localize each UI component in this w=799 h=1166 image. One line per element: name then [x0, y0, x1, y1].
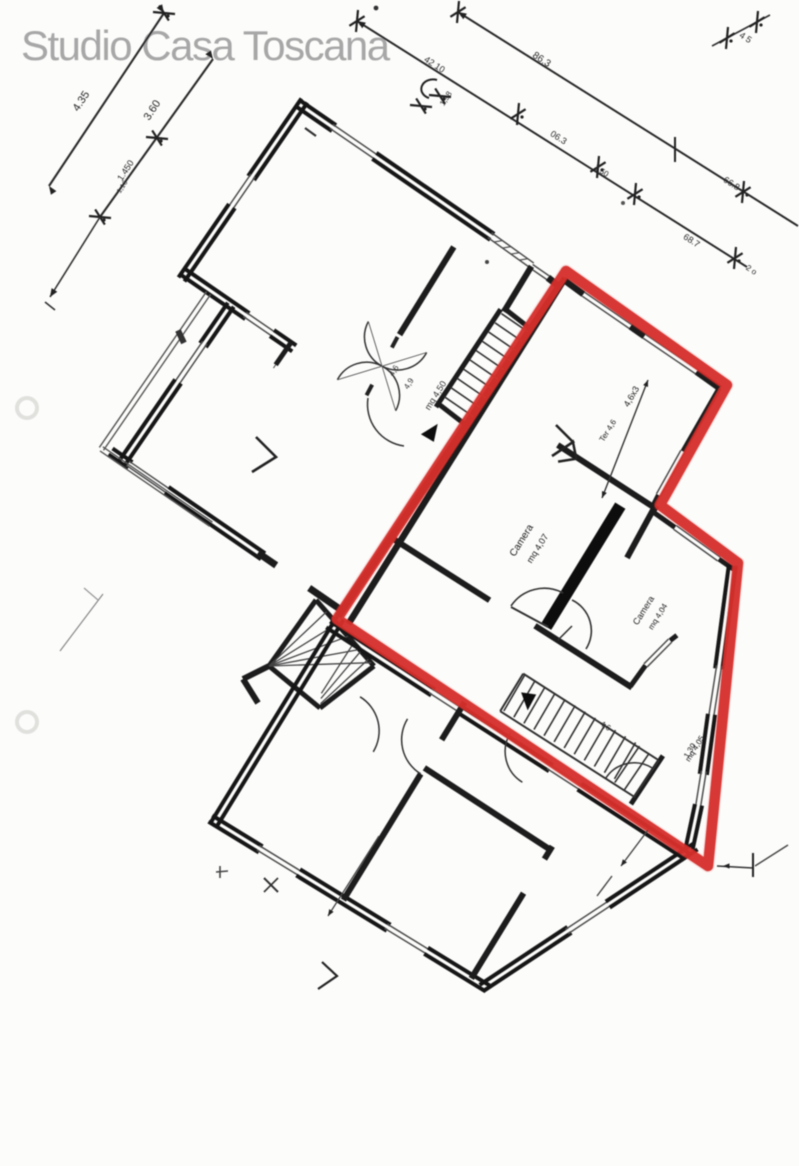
svg-text:Studio Casa Toscana: Studio Casa Toscana	[21, 22, 391, 69]
